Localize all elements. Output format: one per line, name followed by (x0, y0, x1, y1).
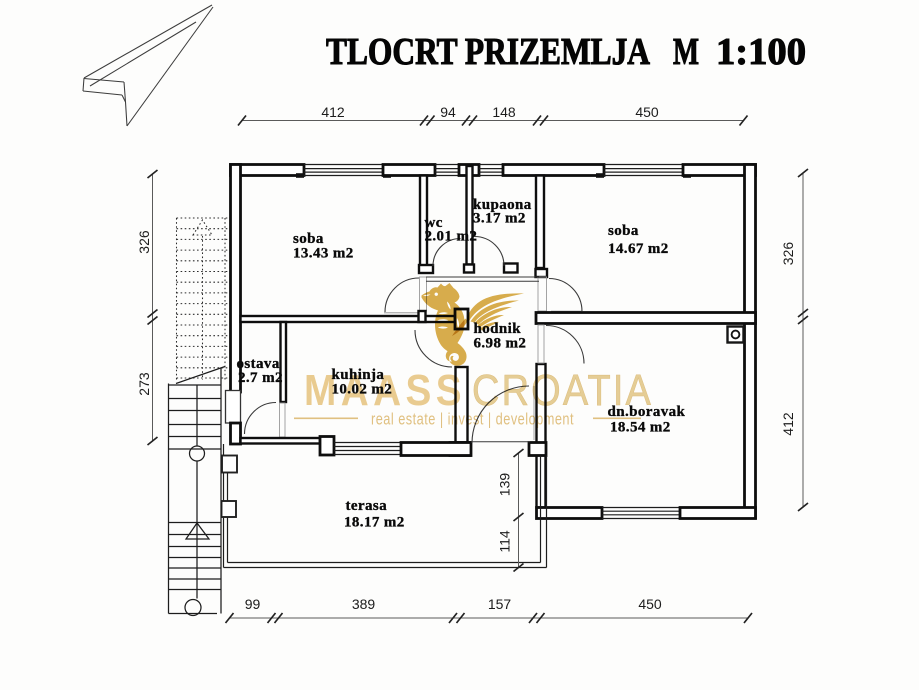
svg-text:450: 450 (635, 104, 659, 120)
svg-text:389: 389 (352, 596, 376, 612)
svg-text:TLOCRT PRIZEMLJA: TLOCRT PRIZEMLJA (326, 31, 650, 73)
svg-text:14.67 m2: 14.67 m2 (608, 241, 669, 257)
svg-text:2.7 m2: 2.7 m2 (238, 370, 283, 386)
svg-text:139: 139 (497, 473, 513, 497)
svg-text:114: 114 (497, 530, 513, 553)
svg-text:10.02 m2: 10.02 m2 (332, 382, 393, 398)
svg-text:326: 326 (136, 230, 152, 254)
svg-text:99: 99 (245, 596, 261, 612)
svg-text:terasa: terasa (346, 498, 388, 514)
svg-text:157: 157 (488, 596, 512, 612)
svg-text:326: 326 (780, 242, 796, 266)
svg-text:6.98 m2: 6.98 m2 (474, 336, 527, 352)
svg-text:450: 450 (638, 596, 662, 612)
svg-text:real estate | invest | develop: real estate | invest | development (371, 411, 574, 429)
svg-text:18.17 m2: 18.17 m2 (344, 515, 405, 531)
svg-text:148: 148 (492, 104, 516, 120)
svg-text:412: 412 (321, 104, 345, 120)
svg-text:13.43 m2: 13.43 m2 (293, 246, 354, 262)
svg-text:18.54 m2: 18.54 m2 (610, 420, 671, 436)
svg-text:94: 94 (440, 104, 456, 120)
svg-text:2.01 m2: 2.01 m2 (425, 229, 478, 245)
svg-text:3.17 m2: 3.17 m2 (473, 211, 526, 227)
svg-text:soba: soba (608, 223, 639, 239)
svg-text:M: M (673, 31, 699, 73)
svg-text:412: 412 (780, 412, 796, 436)
svg-text:1:100: 1:100 (716, 31, 806, 73)
svg-text:dn.boravak: dn.boravak (608, 404, 686, 420)
svg-text:273: 273 (136, 372, 152, 396)
